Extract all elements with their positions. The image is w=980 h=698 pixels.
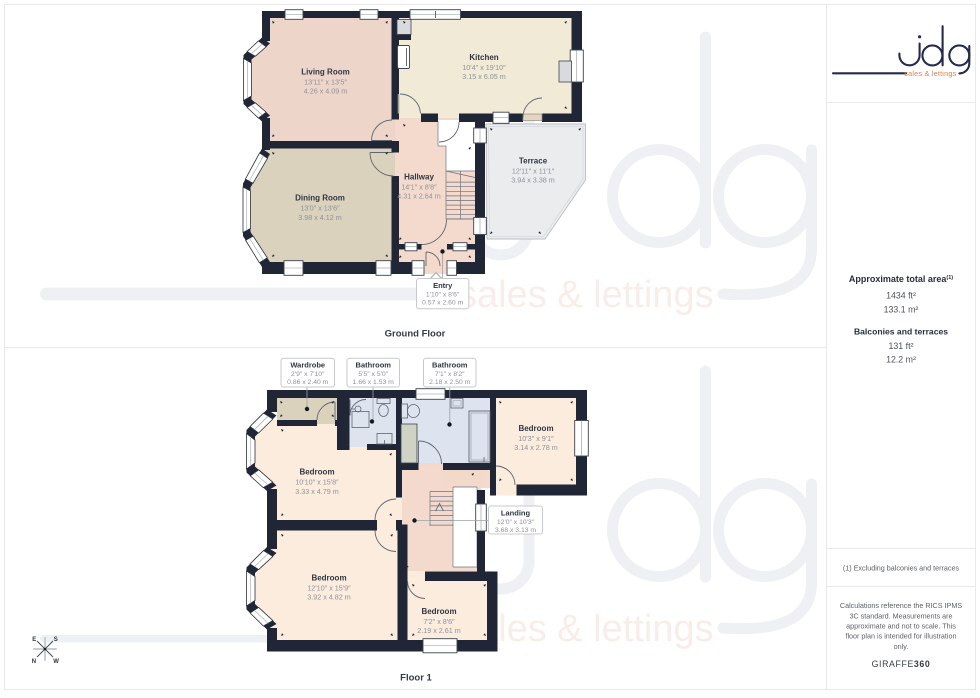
svg-text:12′0″ x 10′3″: 12′0″ x 10′3″ bbox=[497, 519, 535, 526]
svg-text:10′4″ x 19′10″: 10′4″ x 19′10″ bbox=[462, 63, 506, 72]
svg-text:Wardrobe: Wardrobe bbox=[290, 361, 325, 370]
svg-text:3.92 x 4.82 m: 3.92 x 4.82 m bbox=[307, 593, 351, 602]
svg-text:GIRAFFE360: GIRAFFE360 bbox=[872, 659, 931, 669]
svg-text:1.66 x 1.53 m: 1.66 x 1.53 m bbox=[353, 379, 395, 386]
svg-text:Entry: Entry bbox=[433, 281, 453, 290]
svg-text:4.31 x 2.64 m: 4.31 x 2.64 m bbox=[397, 192, 441, 201]
svg-text:Hallway: Hallway bbox=[404, 172, 434, 181]
svg-text:5′5″ x 5′0″: 5′5″ x 5′0″ bbox=[358, 371, 388, 378]
svg-text:12′11″ x 11′1″: 12′11″ x 11′1″ bbox=[512, 167, 555, 176]
svg-text:Balconies and terraces: Balconies and terraces bbox=[854, 326, 948, 336]
svg-text:Floor 1: Floor 1 bbox=[400, 673, 432, 684]
svg-text:7′2″ x 8′6″: 7′2″ x 8′6″ bbox=[423, 617, 455, 626]
svg-text:Bedroom: Bedroom bbox=[421, 607, 456, 616]
svg-text:12.2 m²: 12.2 m² bbox=[886, 355, 916, 365]
svg-text:Bedroom: Bedroom bbox=[518, 424, 553, 433]
svg-text:N: N bbox=[32, 659, 36, 665]
svg-text:S: S bbox=[54, 637, 58, 643]
svg-text:Bathroom: Bathroom bbox=[356, 361, 392, 370]
svg-text:Bathroom: Bathroom bbox=[432, 361, 468, 370]
svg-text:Bedroom: Bedroom bbox=[311, 573, 346, 582]
svg-text:12′10″ x 15′9″: 12′10″ x 15′9″ bbox=[307, 584, 351, 593]
svg-text:sales & lettings: sales & lettings bbox=[458, 274, 714, 316]
svg-text:0.57 x 2.60 m: 0.57 x 2.60 m bbox=[422, 300, 464, 307]
svg-text:3.33 x 4.79 m: 3.33 x 4.79 m bbox=[295, 487, 339, 496]
svg-text:E: E bbox=[32, 637, 36, 643]
svg-text:7′1″ x 8′2″: 7′1″ x 8′2″ bbox=[435, 371, 465, 378]
svg-text:Dining Room: Dining Room bbox=[295, 193, 345, 202]
svg-text:2.19 x 2.61 m: 2.19 x 2.61 m bbox=[417, 626, 461, 635]
svg-text:1′10″ x 8′6″: 1′10″ x 8′6″ bbox=[426, 291, 460, 298]
svg-text:floor plan is intended for ill: floor plan is intended for illustration bbox=[845, 632, 956, 641]
svg-text:131 ft²: 131 ft² bbox=[889, 341, 914, 351]
svg-text:W: W bbox=[53, 659, 59, 665]
svg-text:approximate and not to scale.: approximate and not to scale. This bbox=[846, 622, 956, 631]
svg-text:Landing: Landing bbox=[501, 508, 531, 517]
svg-text:3.98 x 4.12 m: 3.98 x 4.12 m bbox=[298, 213, 342, 222]
svg-text:3.68 x 3.13 m: 3.68 x 3.13 m bbox=[495, 527, 537, 534]
svg-text:3C standard. Measurements are: 3C standard. Measurements are bbox=[849, 611, 952, 620]
svg-text:Approximate total area(1): Approximate total area(1) bbox=[849, 274, 953, 284]
svg-text:3.14 x 2.78 m: 3.14 x 2.78 m bbox=[514, 443, 558, 452]
svg-text:13′0″ x 13′6″: 13′0″ x 13′6″ bbox=[300, 204, 340, 213]
svg-text:14′1″ x 8′8″: 14′1″ x 8′8″ bbox=[401, 183, 437, 192]
svg-text:3.94 x 3.38 m: 3.94 x 3.38 m bbox=[511, 176, 555, 185]
svg-text:Kitchen: Kitchen bbox=[469, 53, 498, 62]
svg-text:only.: only. bbox=[894, 642, 909, 651]
svg-text:Calculations reference the RIC: Calculations reference the RICS IPMS bbox=[840, 601, 962, 610]
svg-text:sales & lettings: sales & lettings bbox=[904, 69, 956, 78]
svg-text:10′3″ x 9′1″: 10′3″ x 9′1″ bbox=[518, 434, 554, 443]
svg-text:(1) Excluding balconies and te: (1) Excluding balconies and terraces bbox=[843, 564, 960, 573]
svg-text:Bedroom: Bedroom bbox=[299, 467, 334, 476]
svg-text:10′10″ x 15′8″: 10′10″ x 15′8″ bbox=[295, 478, 339, 487]
svg-text:133.1 m²: 133.1 m² bbox=[884, 305, 919, 315]
svg-text:0.86 x 2.40 m: 0.86 x 2.40 m bbox=[287, 379, 329, 386]
svg-text:2′9″ x 7′10″: 2′9″ x 7′10″ bbox=[291, 371, 325, 378]
svg-text:2.18 x 2.50 m: 2.18 x 2.50 m bbox=[429, 379, 471, 386]
svg-text:Living Room: Living Room bbox=[301, 67, 349, 76]
svg-text:4.26 x 4.09 m: 4.26 x 4.09 m bbox=[304, 87, 348, 96]
svg-text:13′11″ x 13′5″: 13′11″ x 13′5″ bbox=[304, 78, 347, 87]
svg-text:3.15 x 6.05 m: 3.15 x 6.05 m bbox=[462, 72, 506, 81]
svg-text:Ground Floor: Ground Floor bbox=[385, 329, 446, 340]
svg-text:1434 ft²: 1434 ft² bbox=[886, 291, 916, 301]
svg-text:Terrace: Terrace bbox=[519, 156, 548, 165]
